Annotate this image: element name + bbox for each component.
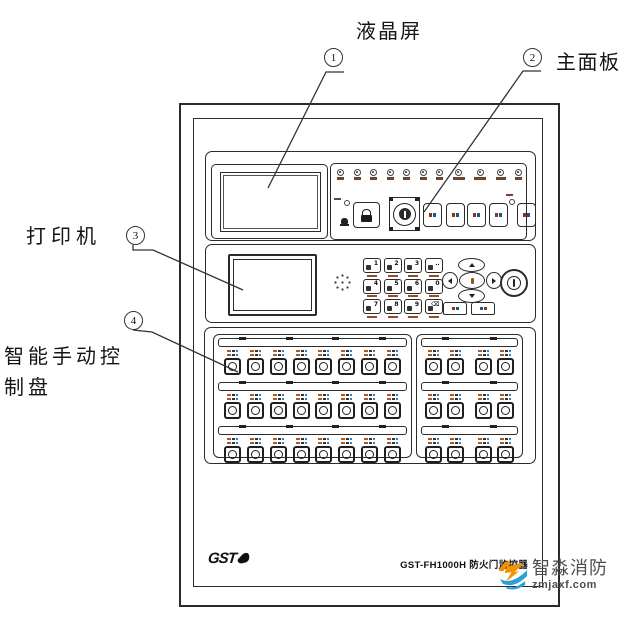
door-control-button[interactable] (315, 446, 332, 463)
door-status-indicator (341, 349, 352, 353)
door-status-indicator (318, 437, 329, 441)
door-control-unit (425, 349, 442, 375)
door-status-indicator (450, 349, 461, 353)
cancel-button[interactable] (471, 302, 495, 315)
door-control-button[interactable] (224, 358, 241, 375)
door-status-indicator (364, 349, 375, 353)
lcd-screen (220, 172, 321, 232)
door-status-indicator (500, 393, 511, 397)
door-control-unit (338, 349, 355, 375)
door-status-indicator (478, 349, 489, 353)
gst-logo-mark-icon (236, 552, 250, 565)
door-control-unit (447, 349, 464, 375)
watermark-brand: 智淼消防 (532, 558, 608, 578)
door-status-indicator (364, 441, 375, 445)
control-row (218, 426, 407, 463)
strip-clip (332, 425, 339, 428)
door-control-unit (293, 349, 310, 375)
door-status-indicator (273, 397, 284, 401)
keypad-key[interactable]: 7 (363, 299, 381, 314)
strip-clip (379, 425, 386, 428)
door-control-button[interactable] (447, 358, 464, 375)
callout-circle-4: 4 (124, 311, 143, 330)
door-status-indicator (296, 397, 307, 401)
door-control-button[interactable] (293, 402, 310, 419)
door-control-button[interactable] (497, 402, 514, 419)
door-control-unit (497, 393, 514, 419)
strip-clip (379, 337, 386, 340)
strip-clip (442, 381, 449, 384)
lcd-panel (211, 164, 328, 239)
door-status-indicator (341, 441, 352, 445)
strip-clip (332, 337, 339, 340)
door-status-indicator (318, 349, 329, 353)
main-panel-button[interactable] (489, 203, 508, 227)
door-status-indicator (450, 437, 461, 441)
speaker-grille-icon (334, 274, 351, 291)
main-panel-button[interactable] (446, 203, 465, 227)
door-status-indicator (428, 437, 439, 441)
door-control-unit (247, 393, 264, 419)
door-status-indicator (250, 393, 261, 397)
door-control-button[interactable] (497, 358, 514, 375)
main-panel-button[interactable] (423, 203, 442, 227)
door-control-button[interactable] (338, 402, 355, 419)
door-status-indicator (500, 441, 511, 445)
door-status-indicator (341, 353, 352, 357)
door-control-button[interactable] (425, 446, 442, 463)
door-control-unit (361, 393, 378, 419)
door-control-unit (224, 349, 241, 375)
door-status-indicator (227, 437, 238, 441)
keypad-key[interactable]: 8 (384, 299, 402, 314)
door-status-indicator (318, 353, 329, 357)
door-status-indicator (296, 437, 307, 441)
label-strip (218, 338, 407, 347)
door-status-indicator (296, 441, 307, 445)
door-status-indicator (318, 441, 329, 445)
door-control-button[interactable] (338, 358, 355, 375)
door-status-indicator (273, 393, 284, 397)
door-control-unit (425, 393, 442, 419)
door-status-indicator (250, 349, 261, 353)
door-status-indicator (364, 437, 375, 441)
label-strip (421, 382, 518, 391)
keypad-key[interactable]: 4 (363, 279, 381, 294)
callout-circle-2: 2 (523, 48, 542, 67)
gst-logo-text: GST (207, 550, 237, 567)
strip-clip (442, 425, 449, 428)
door-control-button[interactable] (247, 402, 264, 419)
door-control-button[interactable] (293, 358, 310, 375)
label-manual-control-panel: 智能手动控 制盘 (4, 342, 124, 404)
door-status-indicator (428, 353, 439, 357)
strip-clip (332, 381, 339, 384)
door-control-button[interactable] (293, 446, 310, 463)
arrow-down-icon (469, 294, 475, 298)
door-control-unit (338, 393, 355, 419)
door-control-unit (475, 393, 492, 419)
keypad-key[interactable]: 2 (384, 258, 402, 273)
door-control-button[interactable] (425, 358, 442, 375)
keypad-key[interactable]: ‥ (425, 258, 443, 273)
door-control-unit (224, 437, 241, 463)
door-status-indicator (227, 393, 238, 397)
main-button-row (331, 164, 526, 239)
door-control-unit (247, 437, 264, 463)
door-status-indicator (428, 393, 439, 397)
door-status-indicator (318, 397, 329, 401)
door-control-unit (247, 349, 264, 375)
keypad-key[interactable]: 6 (404, 279, 422, 294)
cabinet-outer: 123‥4560789⌫ (179, 103, 560, 607)
arrow-up-button[interactable] (458, 258, 485, 272)
door-control-unit (361, 437, 378, 463)
door-control-unit (497, 349, 514, 375)
keypad-key[interactable]: 0 (425, 279, 443, 294)
arrow-left-button[interactable] (442, 272, 458, 289)
door-status-indicator (500, 353, 511, 357)
arrow-left-icon (448, 278, 452, 284)
door-status-indicator (227, 397, 238, 401)
door-control-unit (293, 393, 310, 419)
door-status-indicator (341, 397, 352, 401)
keypad-key[interactable]: 1 (363, 258, 381, 273)
callout-circle-1: 1 (324, 48, 343, 67)
door-control-button[interactable] (497, 446, 514, 463)
manual-panel-left (213, 334, 412, 458)
control-row (218, 338, 407, 375)
door-control-button[interactable] (361, 446, 378, 463)
door-status-indicator (450, 393, 461, 397)
door-control-button[interactable] (315, 358, 332, 375)
control-row (421, 382, 518, 419)
keypad-key[interactable]: 3 (404, 258, 422, 273)
door-control-unit (475, 437, 492, 463)
strip-clip (286, 381, 293, 384)
door-control-button[interactable] (247, 446, 264, 463)
door-control-button[interactable] (270, 402, 287, 419)
door-control-unit (224, 393, 241, 419)
strip-clip (442, 337, 449, 340)
door-control-unit (384, 393, 401, 419)
strip-clip (239, 381, 246, 384)
door-control-button[interactable] (224, 402, 241, 419)
door-status-indicator (450, 397, 461, 401)
door-status-indicator (318, 393, 329, 397)
main-panel-button[interactable] (467, 203, 486, 227)
door-control-button[interactable] (384, 446, 401, 463)
keypad-key[interactable]: 9 (404, 299, 422, 314)
main-panel (330, 163, 527, 240)
top-section (205, 151, 536, 241)
door-control-unit (293, 437, 310, 463)
door-control-button[interactable] (338, 446, 355, 463)
door-control-button[interactable] (475, 402, 492, 419)
arrow-right-icon (492, 278, 496, 284)
strip-clip (490, 381, 497, 384)
watermark-text: 智淼消防 zmjaxf.com (532, 558, 608, 591)
door-status-indicator (500, 397, 511, 401)
door-status-indicator (500, 437, 511, 441)
label-strip (218, 426, 407, 435)
door-control-button[interactable] (224, 446, 241, 463)
door-control-unit (270, 393, 287, 419)
door-status-indicator (428, 441, 439, 445)
label-manual-line1: 智能手动控 (4, 342, 124, 373)
arrow-down-button[interactable] (458, 289, 485, 303)
strip-clip (239, 337, 246, 340)
strip-clip (286, 337, 293, 340)
door-status-indicator (364, 393, 375, 397)
door-control-button[interactable] (447, 446, 464, 463)
manual-panel-right (416, 334, 523, 458)
keypad: 123‥4560789⌫ (363, 258, 443, 314)
door-status-indicator (273, 441, 284, 445)
door-control-unit (361, 349, 378, 375)
door-control-button[interactable] (447, 402, 464, 419)
main-panel-button[interactable] (517, 203, 536, 227)
strip-clip (286, 425, 293, 428)
watermark: 智淼消防 zmjaxf.com (497, 558, 608, 592)
label-strip (218, 382, 407, 391)
door-status-indicator (478, 397, 489, 401)
label-lcd-screen: 液晶屏 (356, 15, 422, 44)
door-control-unit (315, 393, 332, 419)
door-status-indicator (227, 349, 238, 353)
control-row (421, 338, 518, 375)
door-status-indicator (478, 437, 489, 441)
door-status-indicator (250, 353, 261, 357)
cabinet-door: 123‥4560789⌫ (193, 118, 543, 587)
door-status-indicator (450, 441, 461, 445)
menu-button[interactable] (443, 302, 467, 315)
keyhole-icon (507, 276, 521, 290)
nav-cluster (442, 258, 508, 314)
printer-section: 123‥4560789⌫ (205, 244, 536, 323)
door-status-indicator (227, 441, 238, 445)
door-status-indicator (250, 441, 261, 445)
door-status-indicator (478, 441, 489, 445)
door-status-indicator (428, 349, 439, 353)
watermark-logo-icon (497, 558, 530, 592)
strip-clip (490, 337, 497, 340)
door-status-indicator (227, 353, 238, 357)
door-control-unit (447, 437, 464, 463)
control-row (218, 382, 407, 419)
arrow-up-icon (469, 263, 475, 267)
keypad-key[interactable]: ⌫ (425, 299, 443, 314)
door-control-button[interactable] (315, 402, 332, 419)
door-control-button[interactable] (361, 402, 378, 419)
door-status-indicator (450, 353, 461, 357)
printer (228, 254, 317, 316)
door-control-unit (497, 437, 514, 463)
keypad-key[interactable]: 5 (384, 279, 402, 294)
door-control-button[interactable] (475, 446, 492, 463)
door-status-indicator (341, 437, 352, 441)
door-control-unit (315, 437, 332, 463)
door-control-unit (384, 437, 401, 463)
door-status-indicator (387, 393, 398, 397)
door-control-unit (447, 393, 464, 419)
callout-circle-3: 3 (126, 226, 145, 245)
door-control-button[interactable] (384, 358, 401, 375)
gst-logo: GST (207, 550, 251, 567)
door-status-indicator (428, 397, 439, 401)
label-manual-line2: 制盘 (4, 373, 124, 404)
door-control-unit (425, 437, 442, 463)
indicator-label (506, 194, 513, 196)
label-main-panel: 主面板 (556, 46, 621, 75)
door-status-indicator (500, 349, 511, 353)
door-status-indicator (341, 393, 352, 397)
door-status-indicator (296, 393, 307, 397)
strip-clip (490, 425, 497, 428)
door-control-unit (384, 349, 401, 375)
door-control-unit (315, 349, 332, 375)
door-status-indicator (387, 437, 398, 441)
diagram-page: 液晶屏 主面板 打印机 智能手动控 制盘 1 2 3 4 (0, 0, 625, 622)
door-status-indicator (387, 441, 398, 445)
door-status-indicator (273, 353, 284, 357)
door-status-indicator (273, 349, 284, 353)
door-control-button[interactable] (425, 402, 442, 419)
door-status-indicator (364, 353, 375, 357)
door-control-unit (270, 349, 287, 375)
label-strip (421, 426, 518, 435)
door-control-button[interactable] (247, 358, 264, 375)
control-row (421, 426, 518, 463)
door-control-button[interactable] (270, 358, 287, 375)
door-control-button[interactable] (384, 402, 401, 419)
door-control-button[interactable] (475, 358, 492, 375)
door-status-indicator (364, 397, 375, 401)
door-status-indicator (387, 353, 398, 357)
door-control-unit (338, 437, 355, 463)
door-control-unit (475, 349, 492, 375)
door-status-indicator (387, 349, 398, 353)
enter-button[interactable] (459, 272, 485, 289)
door-control-button[interactable] (270, 446, 287, 463)
door-status-indicator (296, 353, 307, 357)
door-status-indicator (478, 393, 489, 397)
door-status-indicator (478, 353, 489, 357)
printer-key-switch[interactable] (500, 269, 528, 297)
strip-clip (239, 425, 246, 428)
label-printer: 打印机 (26, 220, 101, 249)
door-status-indicator (296, 349, 307, 353)
label-strip (421, 338, 518, 347)
function-led (509, 199, 515, 205)
door-status-indicator (387, 397, 398, 401)
door-status-indicator (273, 437, 284, 441)
door-status-indicator (250, 397, 261, 401)
door-control-unit (270, 437, 287, 463)
manual-control-section (204, 327, 536, 464)
strip-clip (379, 381, 386, 384)
door-status-indicator (250, 437, 261, 441)
door-control-button[interactable] (361, 358, 378, 375)
watermark-domain: zmjaxf.com (532, 579, 608, 591)
